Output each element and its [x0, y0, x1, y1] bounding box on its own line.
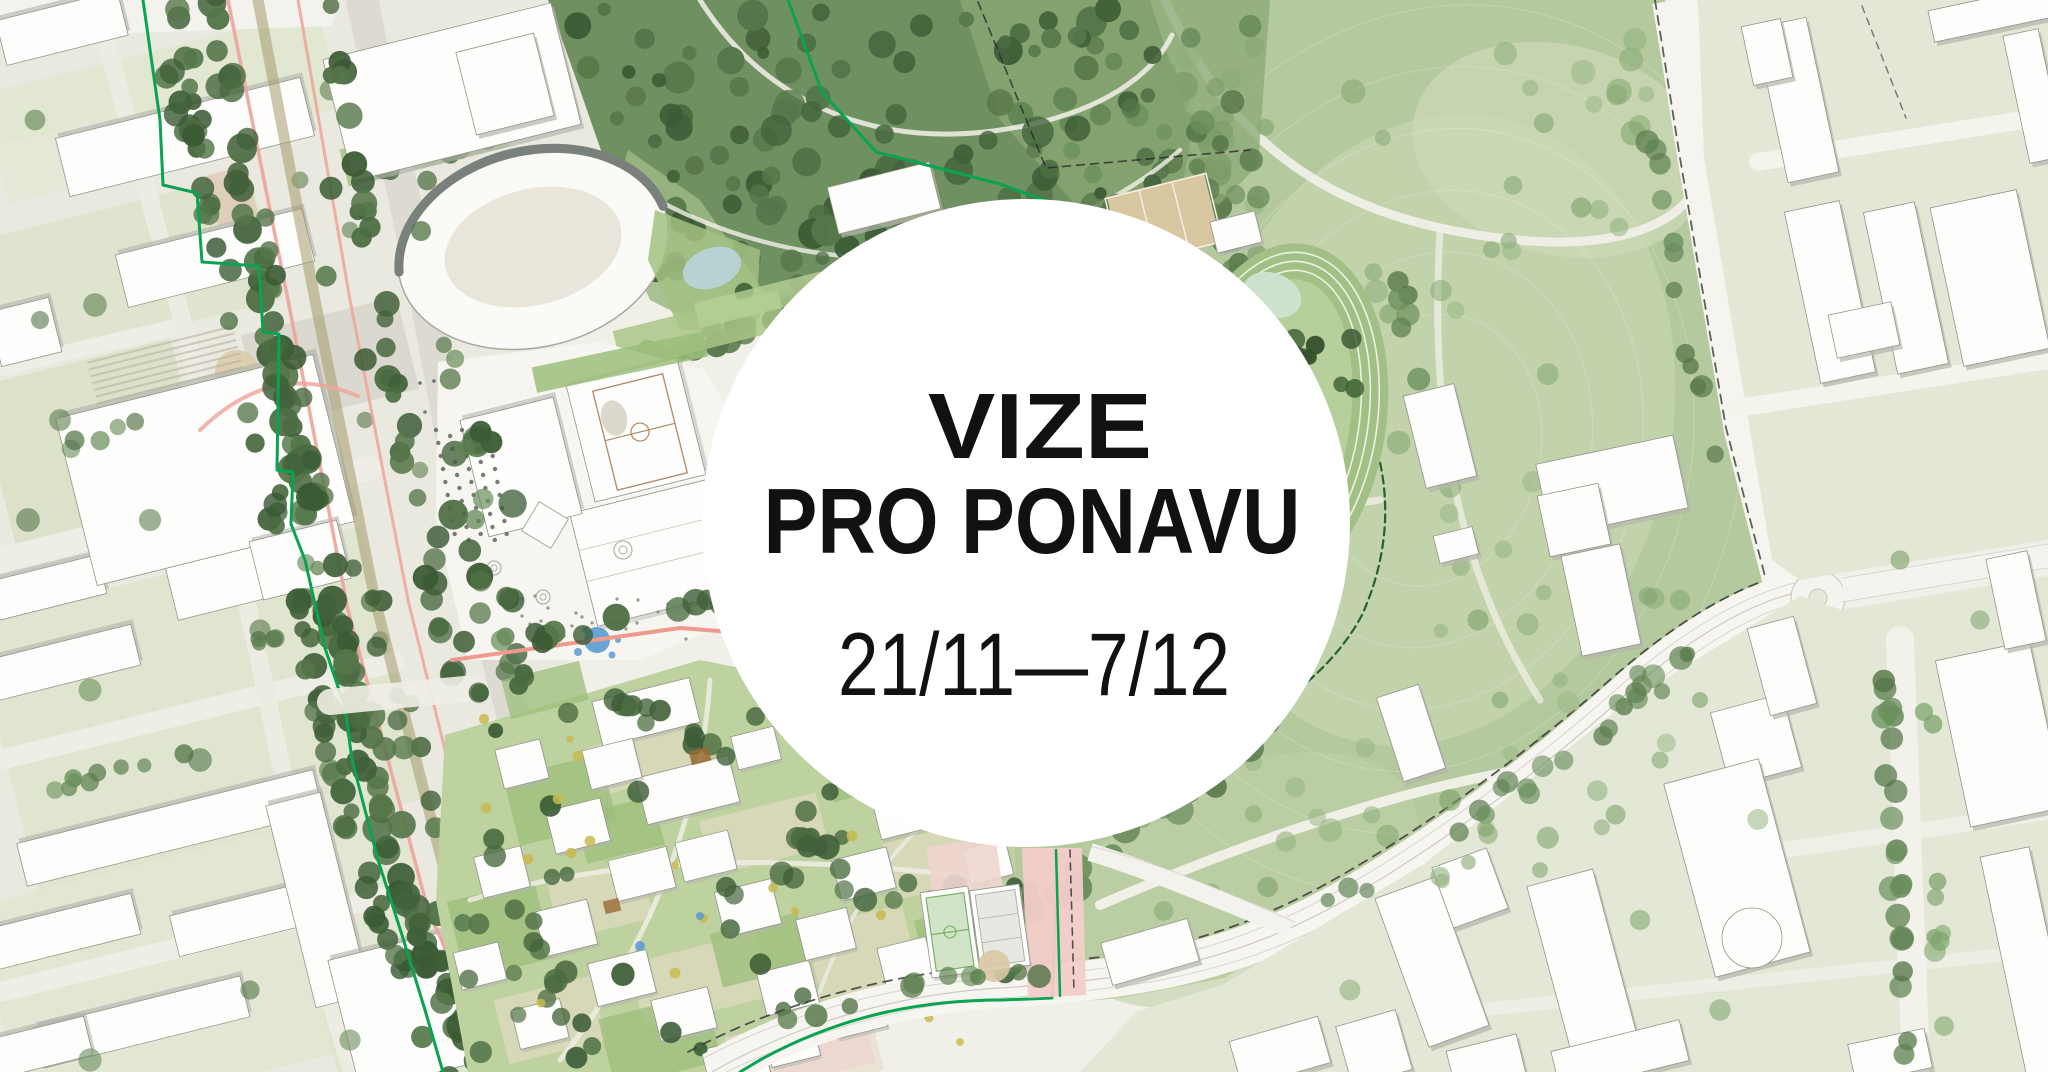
svg-text:21/11—7/12: 21/11—7/12 [838, 614, 1230, 714]
svg-text:VIZE: VIZE [928, 374, 1152, 478]
svg-text:PRO PONAVU: PRO PONAVU [764, 469, 1301, 573]
